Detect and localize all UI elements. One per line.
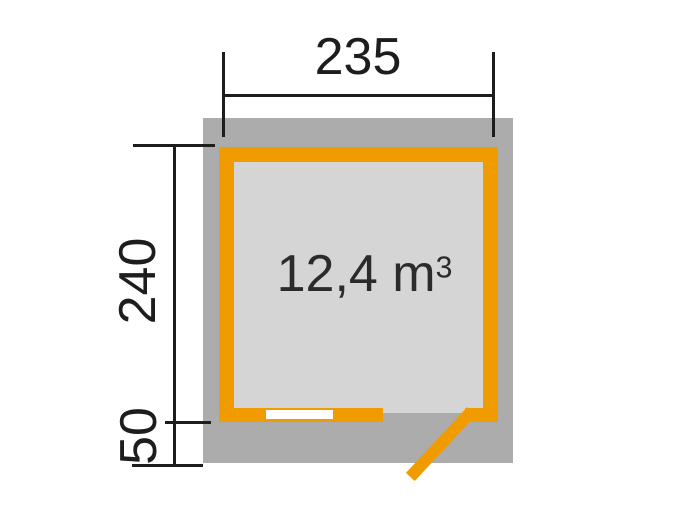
floor-plan-diagram: 235 240 50 12,4 m3 <box>0 0 700 525</box>
dim-depth-tick-middle <box>165 421 211 424</box>
dim-depth-tick-top <box>133 144 215 147</box>
dim-overhang-label: 50 <box>113 356 169 516</box>
dim-depth-line <box>173 145 176 466</box>
dim-width-label: 235 <box>222 31 494 87</box>
volume-exponent: 3 <box>436 251 453 284</box>
volume-value: 12,4 m <box>277 245 436 303</box>
volume-label: 12,4 m3 <box>240 248 489 300</box>
window-marker <box>266 410 333 419</box>
dim-depth-label: 240 <box>112 201 168 361</box>
dim-width-line <box>222 94 494 97</box>
